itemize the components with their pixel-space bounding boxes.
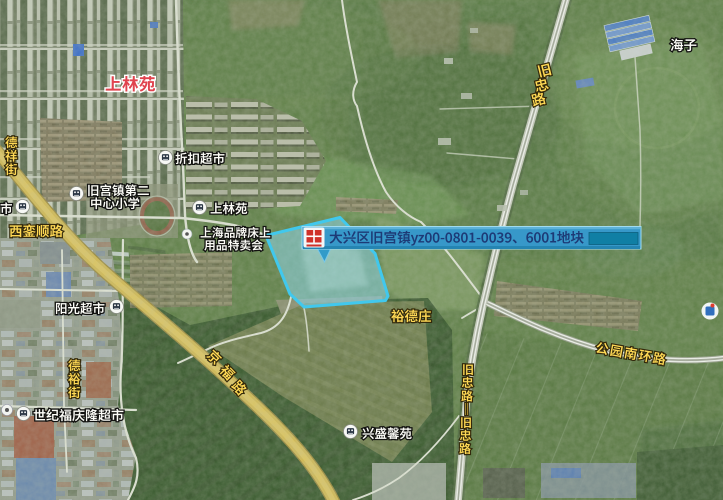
svg-text:用品特卖会: 用品特卖会 bbox=[204, 237, 263, 254]
svg-text:兴盛馨苑: 兴盛馨苑 bbox=[362, 423, 413, 442]
svg-text:中心小学: 中心小学 bbox=[90, 193, 140, 212]
svg-text:大兴区旧宫镇yz00-0801-0039、6001地块: 大兴区旧宫镇yz00-0801-0039、6001地块 bbox=[329, 227, 584, 247]
svg-text:路: 路 bbox=[459, 440, 471, 457]
svg-text:街: 街 bbox=[5, 159, 18, 178]
svg-text:街: 街 bbox=[68, 382, 81, 401]
svg-text:裕德庄: 裕德庄 bbox=[391, 305, 432, 325]
svg-text:阳光超市: 阳光超市 bbox=[55, 298, 105, 317]
svg-text:上林苑: 上林苑 bbox=[105, 71, 156, 95]
svg-text:上林苑: 上林苑 bbox=[210, 198, 248, 217]
svg-text:世纪福庆隆超市: 世纪福庆隆超市 bbox=[33, 405, 124, 424]
svg-text:西銮顺路: 西銮顺路 bbox=[9, 220, 63, 240]
svg-text:市: 市 bbox=[0, 198, 13, 217]
svg-text:折扣超市: 折扣超市 bbox=[175, 148, 225, 167]
svg-text:海子: 海子 bbox=[670, 34, 697, 54]
